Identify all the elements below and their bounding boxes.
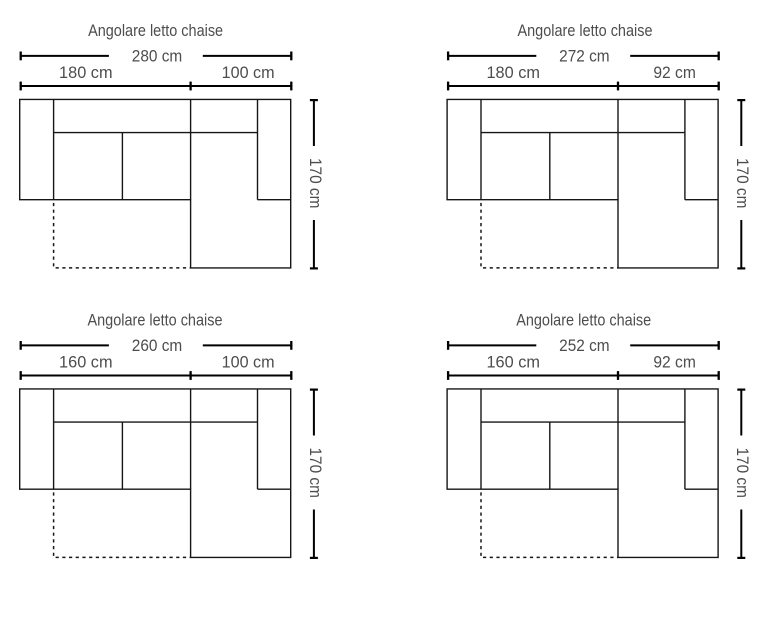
- svg-text:180 cm: 180 cm: [59, 63, 113, 82]
- svg-text:Angolare letto chaise: Angolare letto chaise: [518, 21, 653, 40]
- svg-text:180 cm: 180 cm: [486, 63, 540, 82]
- svg-text:170 cm: 170 cm: [733, 447, 752, 498]
- svg-text:100 cm: 100 cm: [222, 63, 275, 82]
- svg-text:160 cm: 160 cm: [59, 353, 113, 372]
- svg-text:160 cm: 160 cm: [486, 353, 540, 372]
- svg-text:92 cm: 92 cm: [653, 353, 696, 372]
- svg-text:280 cm: 280 cm: [132, 47, 183, 66]
- svg-text:170 cm: 170 cm: [733, 158, 752, 209]
- svg-text:92 cm: 92 cm: [653, 63, 696, 82]
- svg-text:170 cm: 170 cm: [306, 447, 325, 498]
- svg-text:100 cm: 100 cm: [222, 353, 275, 372]
- svg-text:272 cm: 272 cm: [559, 47, 610, 66]
- svg-text:260 cm: 260 cm: [132, 336, 183, 355]
- svg-text:Angolare letto chaise: Angolare letto chaise: [516, 311, 651, 330]
- svg-text:252 cm: 252 cm: [559, 336, 610, 355]
- svg-text:Angolare letto chaise: Angolare letto chaise: [88, 311, 223, 330]
- svg-text:170 cm: 170 cm: [306, 158, 325, 209]
- svg-text:Angolare letto chaise: Angolare letto chaise: [88, 21, 223, 40]
